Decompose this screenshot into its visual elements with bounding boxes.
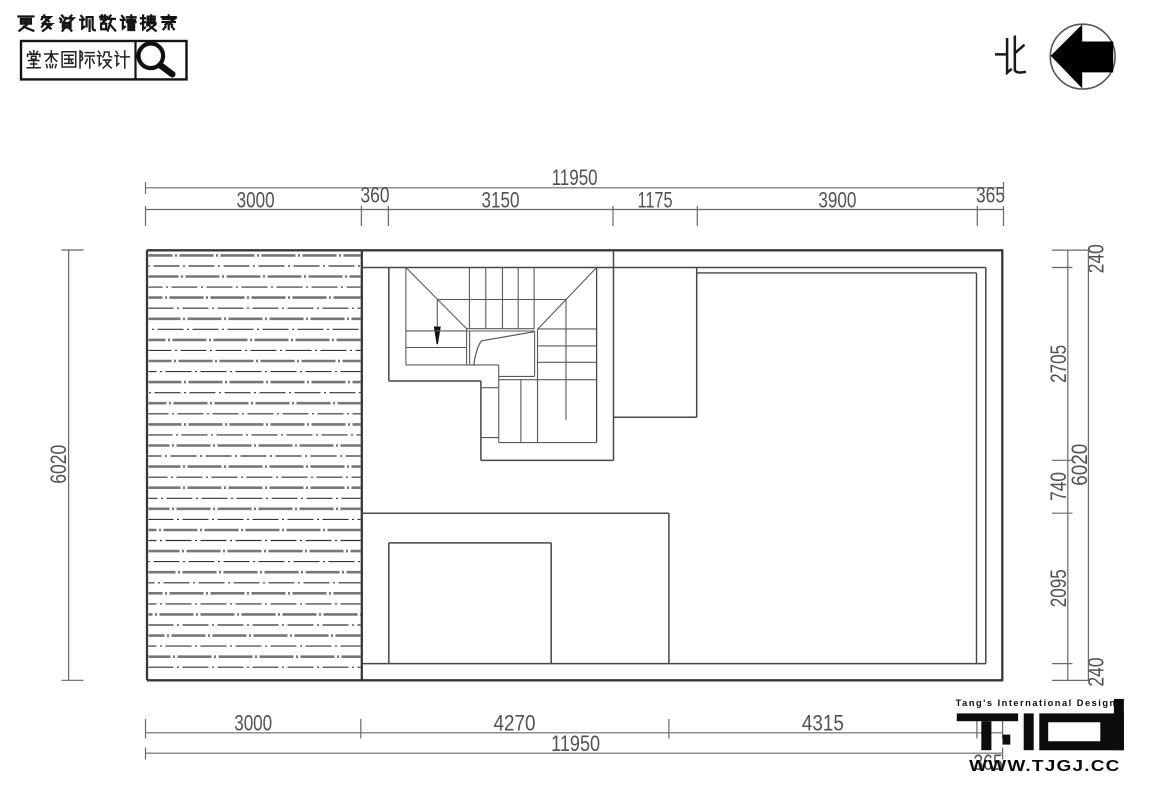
svg-text:6020: 6020 xyxy=(46,445,71,484)
svg-text:3000: 3000 xyxy=(234,710,272,735)
svg-text:1175: 1175 xyxy=(638,187,673,212)
svg-text:11950: 11950 xyxy=(552,165,598,190)
svg-text:240: 240 xyxy=(1083,658,1108,687)
svg-text:WWW.TJGJ.CC: WWW.TJGJ.CC xyxy=(969,758,1121,775)
svg-text:3150: 3150 xyxy=(482,187,520,212)
svg-text:4270: 4270 xyxy=(494,710,536,735)
svg-text:Tang's International Design: Tang's International Design xyxy=(956,698,1117,708)
svg-text:11950: 11950 xyxy=(551,731,600,756)
svg-text:240: 240 xyxy=(1083,244,1108,273)
svg-text:365: 365 xyxy=(976,183,1005,208)
svg-text:6020: 6020 xyxy=(1067,444,1092,486)
svg-text:3000: 3000 xyxy=(237,187,275,212)
svg-text:2095: 2095 xyxy=(1046,569,1071,607)
svg-text:360: 360 xyxy=(361,183,390,208)
svg-text:2705: 2705 xyxy=(1046,345,1071,383)
svg-text:3900: 3900 xyxy=(818,187,856,212)
svg-text:4315: 4315 xyxy=(802,710,844,735)
